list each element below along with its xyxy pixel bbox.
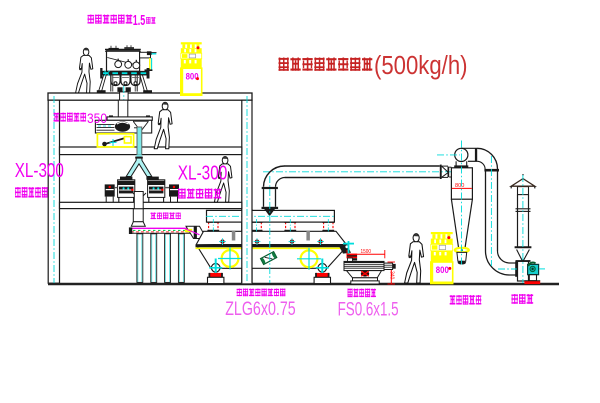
svg-text:FS0.6x1.5: FS0.6x1.5 bbox=[338, 299, 399, 320]
svg-text:1.5: 1.5 bbox=[133, 12, 146, 29]
svg-text:800: 800 bbox=[186, 71, 199, 82]
svg-text:1500: 1500 bbox=[361, 249, 372, 255]
svg-text:XL-300: XL-300 bbox=[15, 160, 64, 182]
svg-text:XL-300: XL-300 bbox=[178, 163, 228, 185]
svg-text:(500kg/h): (500kg/h) bbox=[374, 52, 468, 80]
svg-text:800: 800 bbox=[436, 265, 449, 276]
svg-text:ZLG6x0.75: ZLG6x0.75 bbox=[225, 298, 296, 320]
svg-text:340: 340 bbox=[388, 271, 394, 280]
svg-text:350: 350 bbox=[87, 110, 107, 126]
